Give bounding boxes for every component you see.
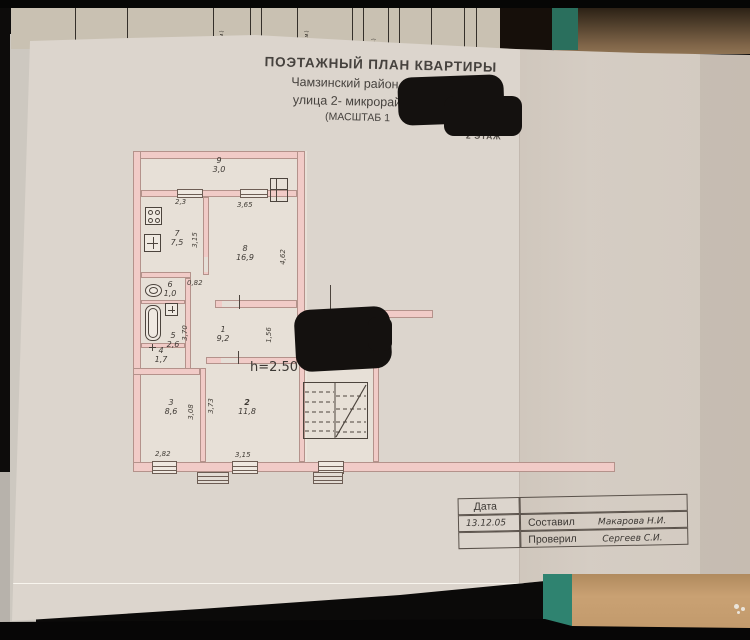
room-label-4: 4 1,7 — [149, 346, 173, 364]
room-label-3: 3 8,6 — [159, 398, 183, 416]
redaction-blob-plan — [368, 317, 392, 351]
photo-of-floor-plan-document: (кв.м.) (кв.м.) м.) ПОЭТАЖНЫЙ ПЛАН КВАРТ… — [0, 0, 750, 640]
dim-room2-bottom: 3,15 — [235, 451, 251, 459]
wall-kitchen-bottom — [141, 272, 191, 278]
dim-kitchen-side: 3,15 — [191, 232, 199, 248]
vent-shaft — [270, 178, 288, 202]
dim-room3-bottom: 2,82 — [155, 450, 171, 458]
door-leaf-mark — [238, 351, 239, 364]
door-leaf-mark — [239, 295, 240, 309]
room-label-6: 6 1,0 — [158, 280, 182, 298]
entrance-steps — [313, 472, 343, 484]
wall-room3-room2 — [200, 368, 206, 462]
dim-room3-side: 3,08 — [187, 404, 195, 420]
speck — [737, 611, 740, 614]
door-opening — [204, 257, 208, 272]
table-column-line — [464, 7, 465, 47]
table-column-line — [388, 7, 389, 47]
window-symbol — [232, 461, 258, 474]
wall-east-upper — [297, 151, 305, 318]
entrance-steps — [197, 472, 229, 484]
door-opening — [221, 358, 238, 363]
ceiling-height-note: h=2.50 — [250, 360, 298, 375]
room-label-9: 9 3,0 — [207, 156, 231, 174]
room-label-1: 1 9,2 — [211, 325, 235, 343]
dim-room8-top: 3,65 — [237, 201, 253, 209]
table-column-line — [399, 7, 400, 47]
window-symbol — [152, 461, 177, 474]
dim-hall-side: 1,56 — [265, 327, 273, 343]
window-symbol — [177, 189, 203, 198]
speck — [734, 604, 739, 609]
door-opening — [222, 301, 239, 307]
page-title: ПОЭТАЖНЫЙ ПЛАН КВАРТИРЫ — [229, 53, 533, 75]
compiled-by-name: Макарова Н.И. — [598, 516, 667, 527]
washbasin-icon — [165, 303, 178, 316]
vent-shaft-divider — [270, 189, 288, 190]
wood-table-surface-bottom — [572, 574, 750, 630]
room-label-8: 8 16,9 — [231, 244, 259, 262]
compiled-label: Составил — [528, 516, 575, 529]
dim-bath-side: 3,70 — [181, 325, 189, 341]
floor-plan-sheet: ПОЭТАЖНЫЙ ПЛАН КВАРТИРЫ Чамзинский район… — [0, 0, 750, 640]
paper-edge-shading — [700, 35, 750, 625]
staircase — [303, 382, 369, 440]
room-label-7: 7 7,5 — [165, 229, 189, 247]
apartment-floor-plan: 9 3,0 7 7,5 8 16,9 6 1,0 5 2,6 4 1,7 — [125, 145, 630, 497]
dim-kitchen-top: 2,3 — [175, 198, 186, 206]
speck — [741, 607, 745, 611]
checked-by-name: Сергеев С.И. — [602, 533, 662, 544]
shadow-under-paper — [500, 4, 554, 52]
folder-edge-teal-top — [552, 6, 578, 50]
date-label: Дата — [474, 500, 497, 512]
redaction-blob-address — [444, 96, 522, 136]
checked-label: Проверил — [528, 533, 577, 546]
wall-south — [133, 462, 615, 472]
stamp-table: Дата 13.12.05 Составил Макарова Н.И. Про… — [451, 490, 694, 555]
door-leaf-mark — [330, 285, 331, 310]
empty-cell — [458, 531, 520, 549]
room-label-2: 2 11,8 — [233, 398, 261, 416]
table-column-line — [476, 7, 477, 47]
bathtub-icon — [145, 305, 161, 341]
wall-room3-top — [133, 368, 200, 375]
paper-crease — [0, 583, 545, 584]
table-column-line — [431, 7, 432, 47]
vent-shaft-divider — [276, 178, 277, 202]
sink-icon — [144, 234, 161, 252]
dim-room8-side: 4,62 — [279, 249, 287, 265]
dim-lobby: 0,82 — [187, 279, 203, 287]
wall-wc-bath — [141, 300, 185, 304]
stove-icon — [145, 207, 162, 225]
dark-background-top — [0, 0, 750, 8]
window-symbol — [240, 189, 268, 198]
dim-room2-side: 3,73 — [207, 398, 215, 414]
date-value: 13.12.05 — [466, 518, 506, 529]
wall-west — [133, 151, 141, 472]
